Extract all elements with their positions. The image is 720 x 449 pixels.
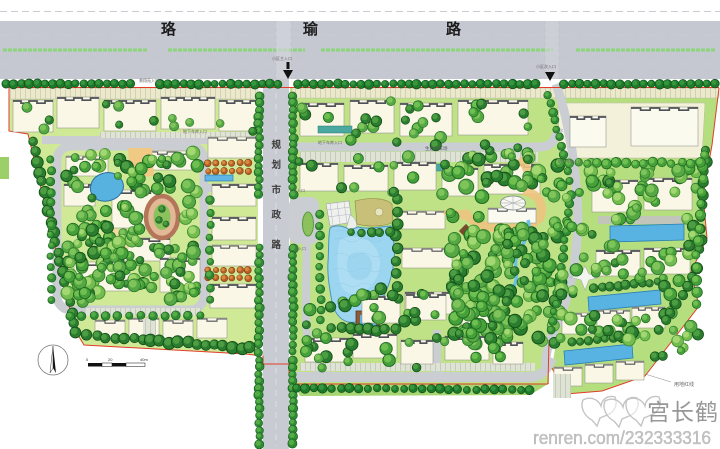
svg-text:20: 20 [108, 357, 113, 362]
svg-text:40m: 40m [140, 357, 148, 362]
svg-text:划: 划 [272, 159, 282, 171]
svg-text:主入口: 主入口 [293, 187, 305, 193]
svg-text:珞: 珞 [161, 20, 177, 38]
svg-text:生态停车场: 生态停车场 [425, 145, 448, 152]
svg-text:政: 政 [272, 209, 282, 221]
svg-text:小区主入口: 小区主入口 [272, 55, 292, 61]
svg-text:景翔苑入口: 景翔苑入口 [139, 77, 159, 83]
svg-text:小区次入口: 小区次入口 [536, 63, 556, 69]
svg-text:renren.com/232333316: renren.com/232333316 [533, 428, 711, 448]
svg-text:瑜: 瑜 [303, 20, 319, 38]
svg-text:规: 规 [272, 139, 282, 151]
svg-text:市: 市 [272, 184, 282, 196]
svg-text:地下车库入口: 地下车库入口 [183, 128, 207, 134]
svg-text:地下车库入口: 地下车库入口 [318, 139, 342, 145]
svg-text:主入口: 主入口 [294, 245, 306, 251]
svg-text:宫长鹤: 宫长鹤 [647, 399, 719, 425]
svg-text:用地红线: 用地红线 [674, 381, 694, 388]
svg-text:路: 路 [272, 239, 282, 251]
svg-text:地下车库入口: 地下车库入口 [558, 158, 582, 164]
svg-text:路: 路 [446, 20, 462, 38]
